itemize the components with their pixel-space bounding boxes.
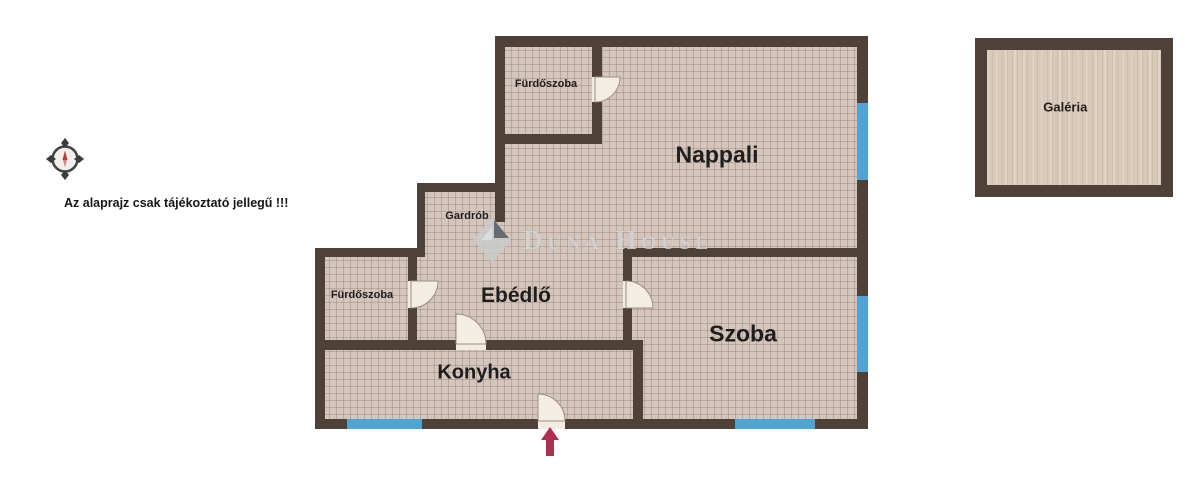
apartment-floorplan: Fürdőszoba Nappali Gardrób Fürdőszoba Eb… <box>315 36 868 429</box>
door-swing-icon <box>538 394 565 421</box>
room-label-nappali: Nappali <box>675 142 758 169</box>
entrance-arrow-icon <box>540 427 560 458</box>
room-label-furdoszoba-top: Fürdőszoba <box>515 78 577 90</box>
door-swing-icons <box>315 36 868 429</box>
room-label-ebedlo: Ebédlő <box>481 284 551 308</box>
room-label-galeria: Galéria <box>1043 99 1087 114</box>
door-swing-icon <box>411 281 438 308</box>
galeria-floor: Galéria <box>987 50 1161 185</box>
galeria-room: Galéria <box>975 38 1173 197</box>
room-label-konyha: Konyha <box>437 362 510 385</box>
disclaimer-text: Az alaprajz csak tájékoztató jellegű !!! <box>64 196 288 210</box>
compass-icon <box>44 136 86 182</box>
door-swing-icon <box>595 77 620 102</box>
door-swing-icon <box>456 314 486 344</box>
room-label-gardrob: Gardrób <box>445 210 488 222</box>
room-label-szoba: Szoba <box>709 321 777 348</box>
room-label-furdoszoba-left: Fürdőszoba <box>331 289 393 301</box>
door-swing-icon <box>626 281 653 308</box>
floorplan-canvas: Az alaprajz csak tájékoztató jellegű !!! <box>0 0 1200 481</box>
